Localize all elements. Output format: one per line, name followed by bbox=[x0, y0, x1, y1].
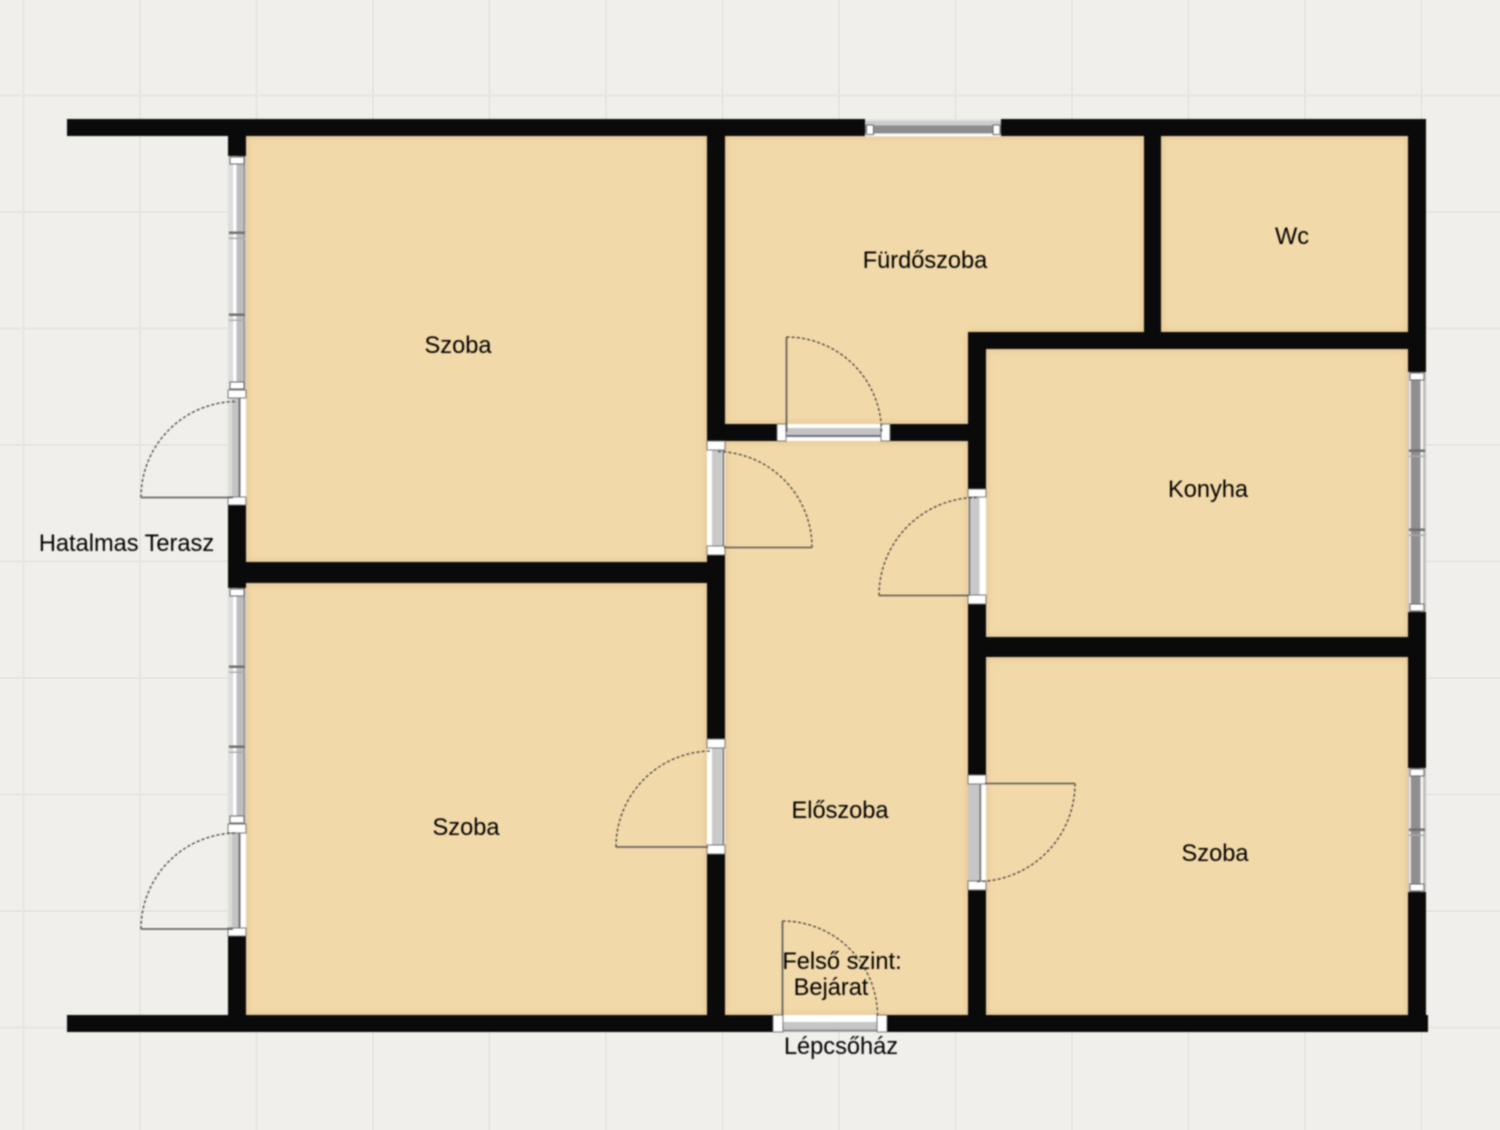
svg-text:Bejárat: Bejárat bbox=[794, 975, 869, 1001]
svg-text:Felső szint:: Felső szint: bbox=[782, 949, 901, 975]
svg-text:Hatalmas Terasz: Hatalmas Terasz bbox=[39, 531, 214, 557]
svg-text:Wc: Wc bbox=[1275, 224, 1309, 250]
svg-text:Szoba: Szoba bbox=[1182, 841, 1250, 867]
svg-text:Fürdőszoba: Fürdőszoba bbox=[863, 248, 988, 274]
svg-text:Lépcsőház: Lépcsőház bbox=[784, 1034, 898, 1060]
svg-text:Szoba: Szoba bbox=[425, 333, 493, 359]
svg-text:Szoba: Szoba bbox=[433, 815, 501, 841]
svg-text:Konyha: Konyha bbox=[1168, 477, 1249, 503]
svg-text:Előszoba: Előszoba bbox=[791, 798, 889, 824]
